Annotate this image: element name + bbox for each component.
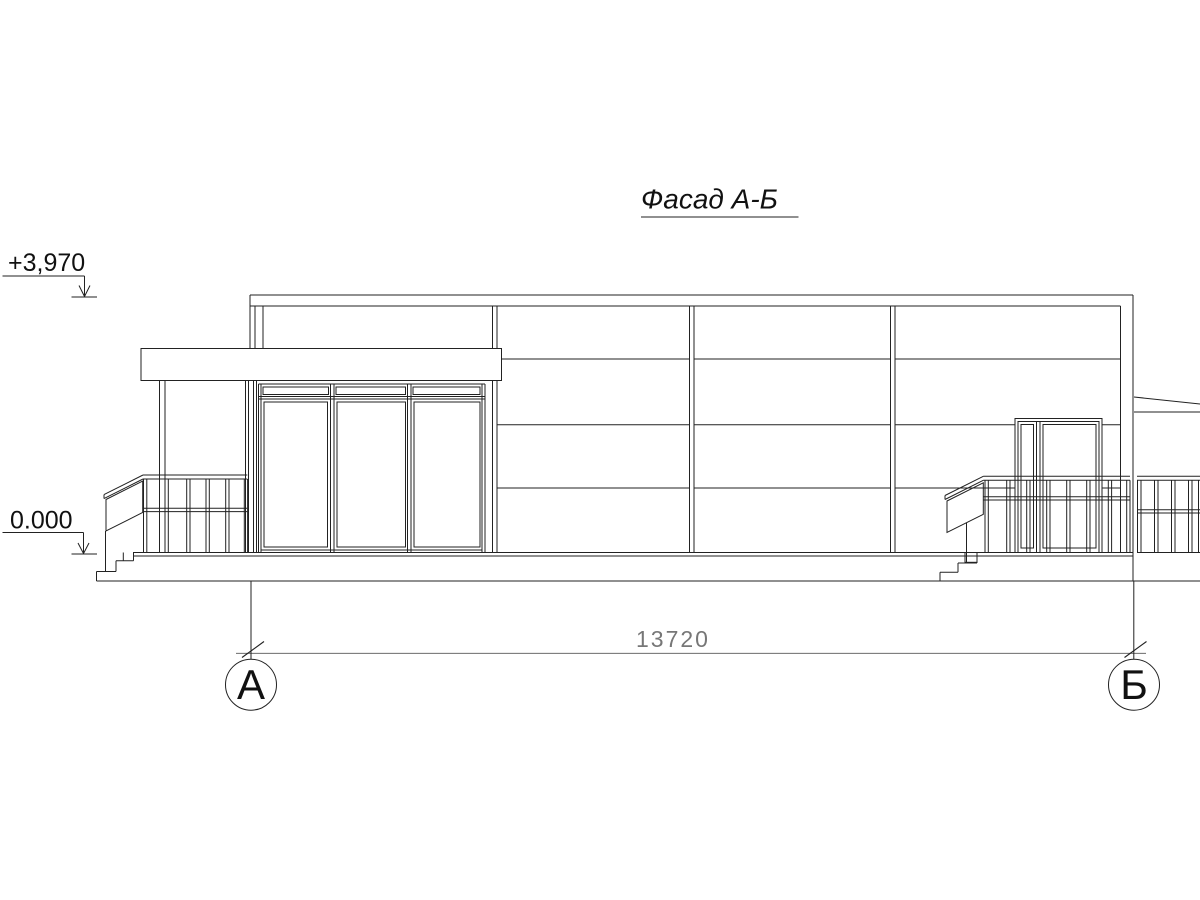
column-above-canopy — [250, 306, 263, 349]
transom-window — [413, 387, 480, 395]
dimension-value: 13720 — [636, 626, 710, 652]
transom-window — [263, 387, 329, 395]
left-porch — [97, 475, 248, 581]
elevation-leader-base — [3, 533, 98, 555]
elevation-mark-top: +3,970 — [3, 249, 98, 297]
glass-panel — [337, 402, 406, 547]
door-leaf-glass — [1021, 425, 1034, 549]
glazing-frame — [259, 384, 486, 553]
door-frame — [1015, 419, 1102, 553]
left-stairs — [97, 553, 134, 582]
drawing-title: Фасад А-Б — [641, 184, 778, 215]
structure-beyond-axis-b — [1134, 397, 1200, 412]
outer-right-railing — [1134, 397, 1200, 553]
transom-window — [336, 387, 406, 395]
right-railing-sloped-panel — [947, 483, 983, 533]
outer-railing-balusters — [1138, 480, 1199, 552]
entrance-glazing — [259, 384, 486, 553]
outer-railing-rails — [1137, 476, 1200, 513]
axis-label-a: А — [237, 661, 265, 708]
pilasters — [493, 306, 896, 553]
canopy-slab — [141, 349, 502, 381]
canopy-columns — [160, 381, 257, 553]
right-railing-balusters — [985, 480, 1130, 552]
entrance-canopy — [141, 349, 502, 553]
axis-label-b: Б — [1120, 661, 1148, 708]
elevation-mark-base: 0.000 — [3, 507, 98, 555]
glass-panel — [264, 402, 328, 547]
elevation-value-top: +3,970 — [8, 249, 85, 277]
side-entrance-door — [1015, 419, 1102, 553]
elevation-drawing: Фасад А-Б +3,970 0.000 13720 А Б — [0, 0, 1200, 900]
building-outline — [97, 295, 1200, 581]
base-lines — [97, 553, 1200, 582]
siding-lines — [497, 359, 1121, 488]
elevation-value-base: 0.000 — [10, 507, 73, 535]
glass-panel — [414, 402, 480, 547]
right-stairs — [940, 553, 977, 582]
parapet — [250, 295, 1133, 581]
facade-drawing-sheet: Фасад А-Б +3,970 0.000 13720 А Б — [0, 0, 1200, 900]
dimension-chain: 13720 — [236, 626, 1147, 658]
title-block: Фасад А-Б — [641, 184, 799, 218]
